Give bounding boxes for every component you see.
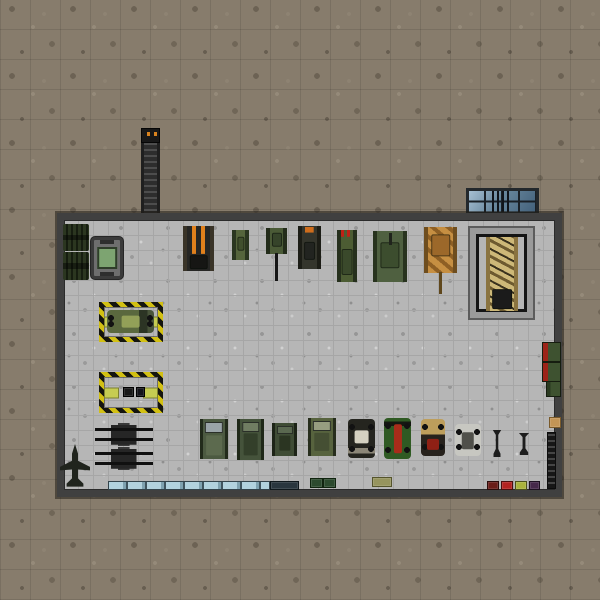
- red-crate[interactable]: [501, 481, 513, 490]
- green-crate-2[interactable]: [323, 478, 336, 488]
- yellow-crate[interactable]: [515, 481, 527, 490]
- green-hotrod[interactable]: [384, 418, 411, 459]
- tractor[interactable]: [272, 423, 297, 456]
- blue-barrier-row[interactable]: [108, 481, 270, 490]
- weapon-rack-strip[interactable]: [547, 432, 556, 489]
- flak-gun-2[interactable]: [95, 447, 153, 470]
- tan-red-car[interactable]: [421, 419, 445, 456]
- chimney-ladder: [141, 128, 160, 215]
- wall-turret-3[interactable]: [546, 381, 561, 397]
- aa-missile-rack-1[interactable]: [63, 224, 89, 251]
- rocket-launcher-tank[interactable]: [337, 230, 357, 282]
- apc-truck-2[interactable]: [237, 419, 264, 460]
- olive-crate[interactable]: [372, 477, 392, 487]
- dark-barrier-segment[interactable]: [270, 481, 299, 490]
- military-jeep[interactable]: [308, 418, 336, 456]
- green-screen-console[interactable]: [91, 237, 123, 279]
- vintage-car[interactable]: [348, 419, 375, 458]
- game-map: [0, 0, 600, 600]
- skylight-window: [466, 188, 539, 215]
- bay2-crate-2[interactable]: [136, 387, 145, 397]
- green-crate-1[interactable]: [310, 478, 323, 488]
- wall-turret-1[interactable]: [542, 342, 561, 362]
- purple-crate[interactable]: [529, 481, 540, 490]
- flak-gun-1[interactable]: [95, 423, 153, 446]
- light-tank[interactable]: [232, 230, 249, 260]
- bay2-crate-1[interactable]: [123, 387, 134, 397]
- apc-truck-1[interactable]: [200, 419, 228, 459]
- trophy-camo-tank[interactable]: [486, 237, 518, 311]
- tan-crate[interactable]: [549, 417, 561, 428]
- heavy-green-tank[interactable]: [373, 231, 407, 282]
- dark-red-crate[interactable]: [487, 481, 499, 490]
- aa-missile-rack-2[interactable]: [63, 252, 89, 280]
- wall-turret-2[interactable]: [542, 362, 561, 382]
- long-barrel-tank[interactable]: [266, 228, 287, 254]
- bay-truck[interactable]: [107, 310, 154, 333]
- orange-marked-tank[interactable]: [298, 226, 321, 269]
- white-buggy[interactable]: [455, 424, 481, 456]
- burnt-flame-tank[interactable]: [183, 226, 214, 271]
- desert-camo-tank[interactable]: [424, 227, 457, 273]
